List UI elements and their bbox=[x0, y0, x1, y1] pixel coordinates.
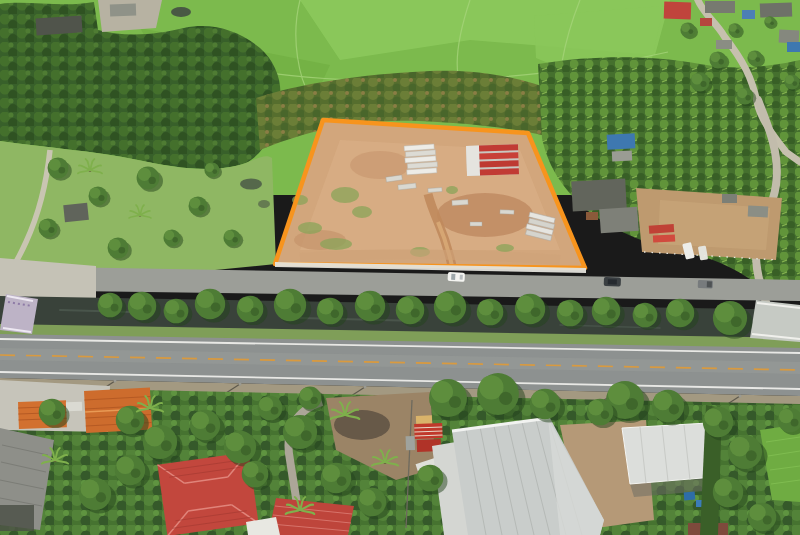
white-slab-stack bbox=[404, 144, 438, 175]
compound-shed-small bbox=[722, 194, 737, 203]
house-red-roof-small bbox=[700, 18, 712, 26]
house-gray-roof-small bbox=[716, 40, 732, 49]
pond-tiny bbox=[258, 200, 270, 208]
blue-roof-structure bbox=[607, 133, 636, 149]
pole-top bbox=[114, 380, 117, 383]
frontage-road bbox=[0, 266, 800, 301]
house-blue-roof bbox=[742, 10, 755, 19]
pole-top bbox=[239, 383, 242, 386]
pole-top bbox=[739, 395, 742, 398]
rust-structure bbox=[586, 212, 598, 220]
barn-roof bbox=[35, 15, 82, 35]
pond-small bbox=[240, 179, 262, 190]
pole-top bbox=[364, 386, 367, 389]
red-trailer bbox=[653, 234, 675, 242]
gray-pallet bbox=[406, 436, 415, 450]
bridge-left bbox=[0, 294, 38, 334]
house-red-roof bbox=[664, 2, 692, 20]
blue-item bbox=[684, 491, 696, 500]
carport-dark bbox=[0, 505, 34, 531]
bridge-right bbox=[750, 300, 800, 342]
house-gray-roof-large bbox=[571, 179, 626, 212]
pickup-cab bbox=[707, 281, 712, 287]
house-gray-roof bbox=[779, 29, 800, 43]
white-car bbox=[448, 272, 465, 282]
stack-white-end bbox=[466, 146, 480, 176]
neighborhood-south bbox=[0, 373, 800, 535]
house-gray-roof bbox=[599, 207, 639, 234]
hut-roof bbox=[63, 203, 89, 222]
gray-structure bbox=[612, 150, 632, 161]
car-rear-window bbox=[460, 275, 463, 280]
gray-pickup bbox=[698, 280, 713, 289]
dirt-patch-dark bbox=[437, 193, 533, 237]
dark-suv bbox=[604, 277, 621, 287]
aerial-photo-canvas bbox=[0, 0, 800, 535]
pond-top bbox=[171, 7, 191, 17]
worn-strip bbox=[300, 254, 560, 260]
white-structure bbox=[66, 402, 82, 412]
blue-tarp bbox=[787, 42, 800, 52]
house-gray-roof bbox=[760, 2, 792, 17]
red-capped-stack bbox=[466, 144, 519, 176]
compound-shed bbox=[748, 205, 769, 217]
suv-roof bbox=[608, 279, 617, 284]
shed-roof bbox=[622, 423, 714, 484]
shed-roof-small bbox=[110, 4, 136, 17]
aerial-photo bbox=[0, 0, 800, 535]
house-gray-roof bbox=[705, 1, 735, 13]
car-windshield bbox=[451, 274, 455, 280]
